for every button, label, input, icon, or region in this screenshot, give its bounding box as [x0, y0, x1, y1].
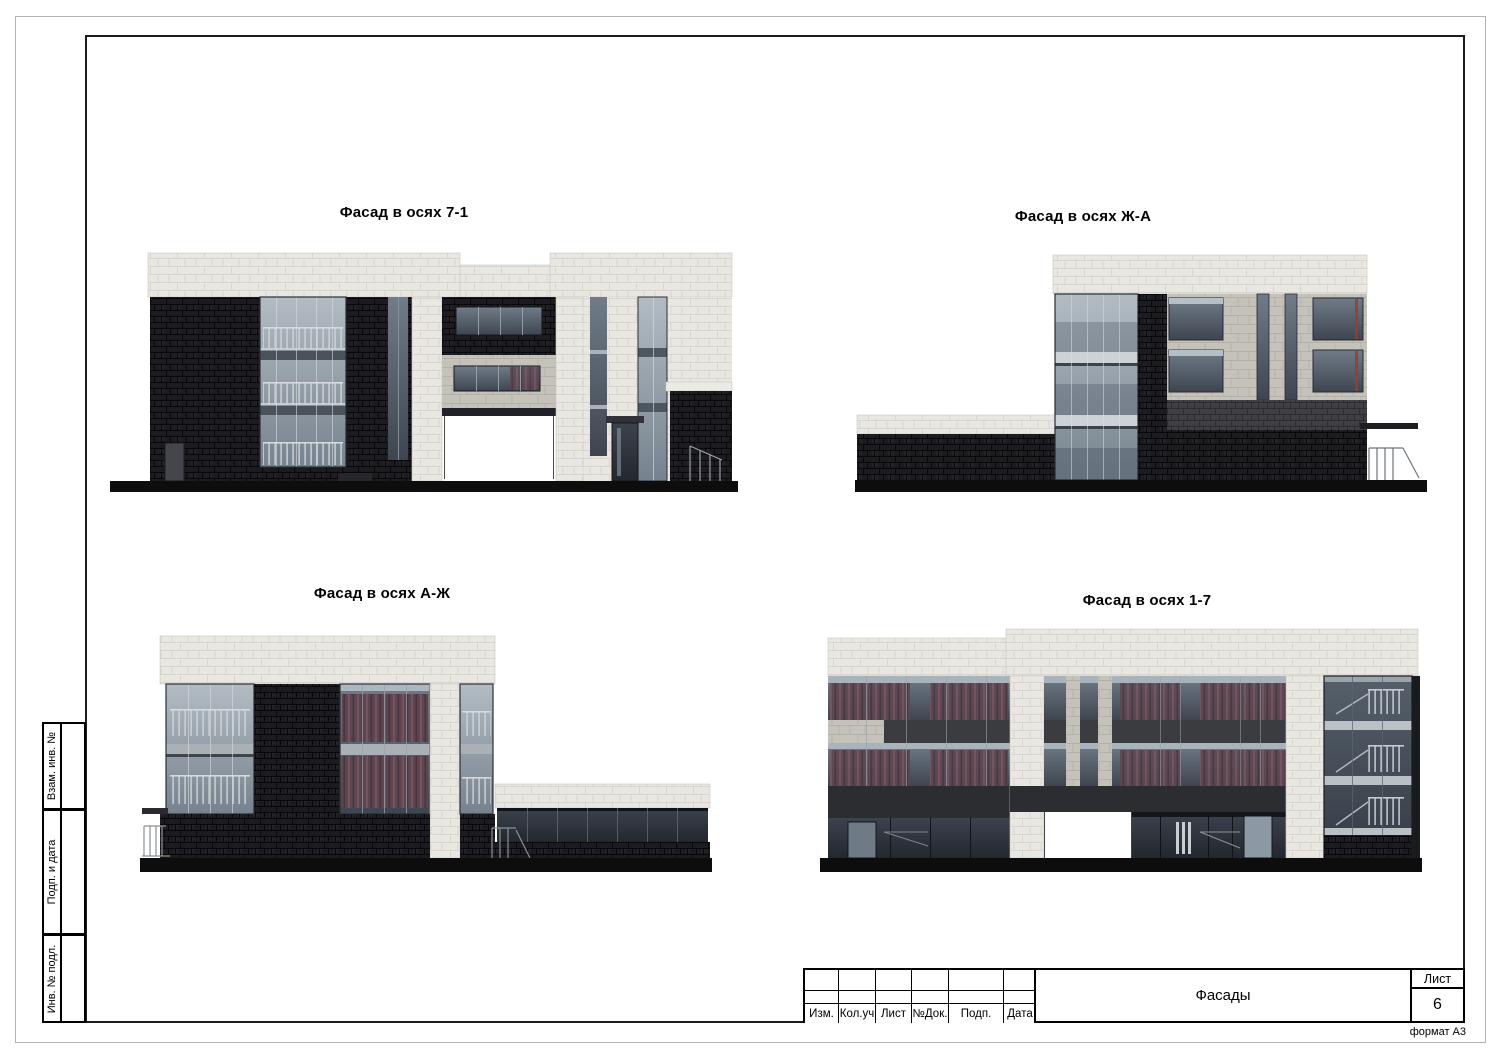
canopy-slab [1360, 423, 1418, 429]
title-block-col-list: Лист [876, 1004, 911, 1024]
grey-brick-band [1167, 400, 1367, 430]
title-block-empty-cell [949, 991, 1003, 1003]
parapet-band [148, 253, 732, 297]
title-block-revision-table: Изм. Кол.уч Лист №Док. Подп. Дата [803, 968, 1036, 1023]
left-block [828, 676, 1010, 858]
entrance-canopy [606, 416, 644, 423]
facade-1-7-title: Фасад в осях 1-7 [977, 592, 1317, 609]
parapet-band [160, 636, 495, 684]
right-low-wing [492, 784, 710, 858]
facade-zh-a-title: Фасад в осях Ж-А [913, 208, 1253, 225]
side-block-empty-cell [62, 936, 84, 1021]
stair-tower [1324, 676, 1420, 858]
balcony-glazing-left [166, 684, 254, 814]
passage-opening [1044, 812, 1132, 858]
side-block-empty-cell [62, 724, 84, 808]
entrance-door [1244, 816, 1272, 858]
title-block-col-dok: №Док. [912, 1004, 948, 1024]
title-block-document-title: Фасады [1034, 968, 1412, 1023]
title-block-empty-cell [876, 991, 911, 1003]
middle-section [442, 297, 556, 479]
title-block-empty-cell [805, 991, 838, 1003]
title-block-empty-cell [949, 970, 1003, 990]
title-block-col-data: Дата [1004, 1004, 1036, 1024]
side-block-empty-cell [62, 811, 84, 933]
sheet-number: 6 [1412, 989, 1463, 1021]
side-block-podp-data: Подп. и дата [42, 809, 86, 935]
passage-opening [444, 416, 554, 479]
facade-1-7-drawing [820, 626, 1425, 873]
side-block-inv-podl: Инв. № подл. [42, 934, 86, 1023]
title-block-empty-cell [839, 991, 875, 1003]
entrance-door [848, 822, 876, 858]
right-section [584, 297, 732, 481]
panel-section [1167, 294, 1418, 480]
side-block-vzam-inv: Взам. инв. № [42, 722, 86, 810]
side-block-label: Подп. и дата [46, 840, 58, 905]
side-block-label: Взам. инв. № [46, 732, 58, 800]
parapet-band [1053, 255, 1367, 294]
curtain-glazing-mid [340, 684, 430, 814]
title-block-empty-cell [912, 970, 948, 990]
parapet-band [828, 629, 1418, 676]
title-block-sheet-box: Лист 6 [1410, 968, 1465, 1023]
title-block-empty-cell [839, 970, 875, 990]
balcony-glazing-right [460, 684, 493, 814]
title-block-empty-cell [1004, 991, 1036, 1003]
curtain-wall [1055, 294, 1138, 480]
facade-7-1-title: Фасад в осях 7-1 [234, 204, 574, 221]
title-block-col-izm: Изм. [805, 1004, 838, 1024]
ground-line [855, 480, 1427, 492]
low-brick-wing [857, 415, 1055, 480]
ground-line [140, 858, 712, 872]
ground-line [820, 858, 1422, 872]
white-pilaster [1010, 676, 1044, 858]
mid-storefront [1132, 812, 1286, 858]
title-block-col-koluch: Кол.уч [839, 1004, 875, 1024]
title-block-empty-cell [805, 970, 838, 990]
title-block-empty-cell [912, 991, 948, 1003]
left-brick-wing [150, 297, 412, 481]
white-pilaster [1286, 676, 1324, 858]
facade-zh-a-drawing [855, 252, 1430, 492]
sheet-label: Лист [1412, 970, 1463, 989]
facade-7-1-drawing [110, 250, 742, 495]
facade-a-zh-title: Фасад в осях А-Ж [212, 585, 552, 602]
title-block-empty-cell [876, 970, 911, 990]
brick-pier [1138, 294, 1167, 480]
canopy-slab [142, 808, 168, 814]
entrance-door [612, 423, 638, 481]
white-pilaster [556, 297, 584, 481]
white-pilaster [430, 684, 460, 858]
facade-a-zh-drawing [140, 626, 715, 876]
title-block-empty-cell [1004, 970, 1036, 990]
ground-line [110, 481, 738, 492]
brick-pier [254, 684, 340, 814]
white-pilaster [412, 297, 442, 481]
side-block-label: Инв. № подл. [46, 944, 58, 1013]
format-note: формат А3 [1330, 1026, 1466, 1038]
stair-railing [1369, 448, 1419, 480]
title-block-col-podp: Подп. [949, 1004, 1003, 1024]
